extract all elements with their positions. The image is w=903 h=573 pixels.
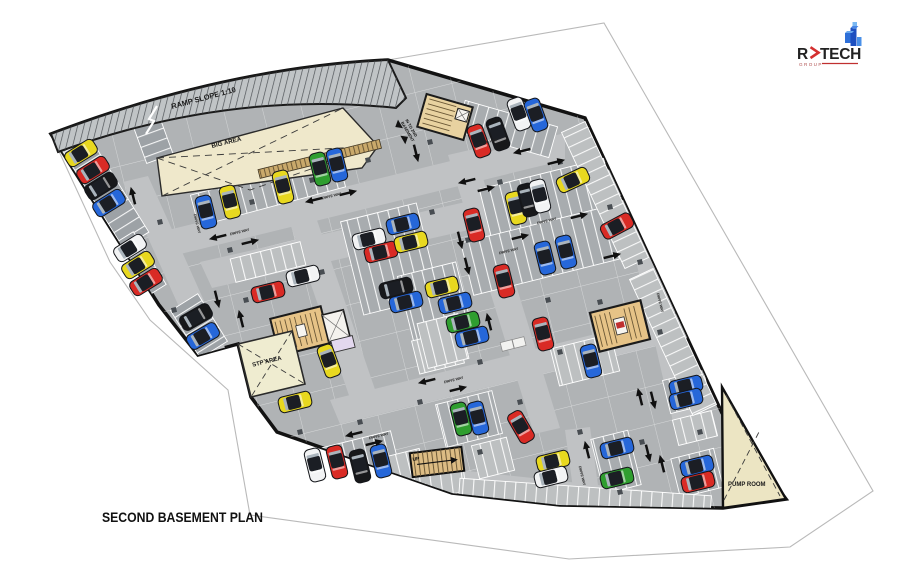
svg-text:SECOND BASEMENT PLAN: SECOND BASEMENT PLAN	[102, 509, 263, 525]
svg-text:R: R	[797, 46, 808, 63]
svg-text:PUMP ROOM: PUMP ROOM	[728, 482, 766, 488]
svg-text:TECH: TECH	[820, 46, 861, 63]
svg-text:GROUP: GROUP	[799, 62, 823, 67]
